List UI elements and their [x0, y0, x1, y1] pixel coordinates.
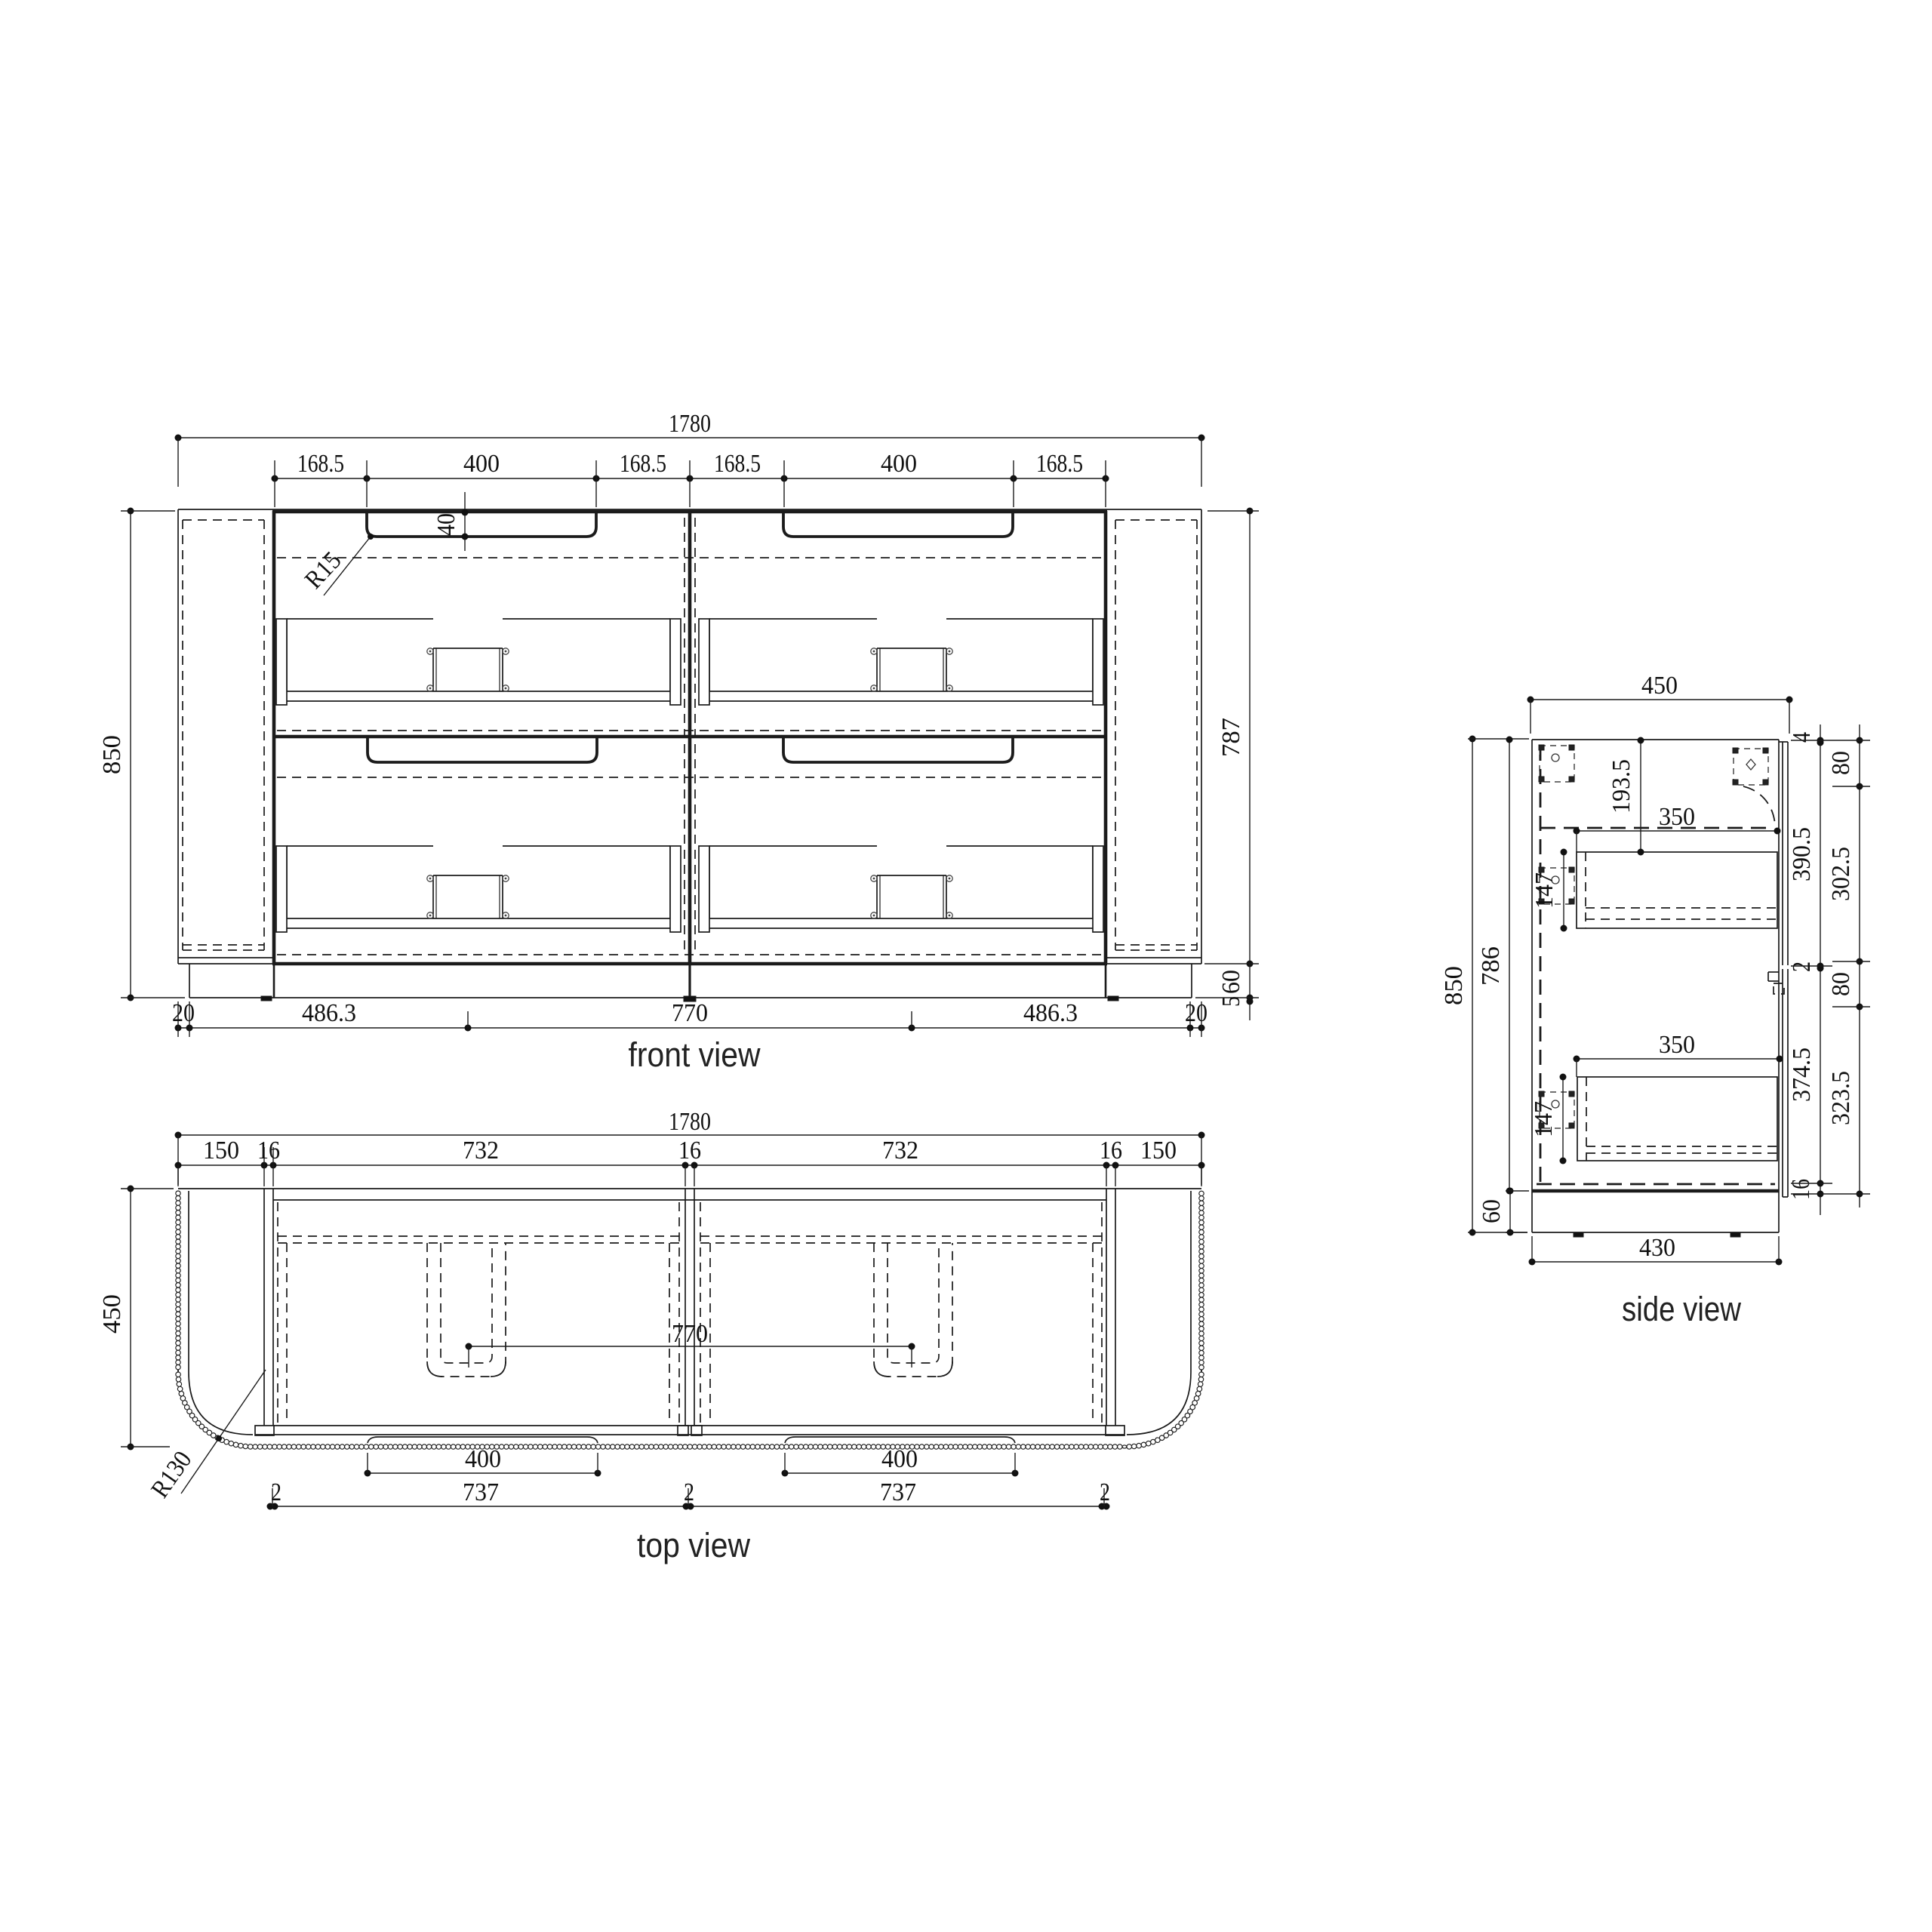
svg-text:168.5: 168.5 — [1036, 450, 1083, 478]
svg-text:147: 147 — [1531, 872, 1558, 909]
svg-text:60: 60 — [1478, 1199, 1506, 1223]
svg-text:60: 60 — [1217, 970, 1245, 994]
svg-text:770: 770 — [672, 999, 708, 1027]
svg-text:2: 2 — [1788, 961, 1816, 972]
svg-text:16: 16 — [678, 1137, 701, 1164]
svg-text:374.5: 374.5 — [1788, 1048, 1816, 1102]
svg-text:400: 400 — [881, 1445, 918, 1473]
svg-text:80: 80 — [1827, 972, 1855, 996]
svg-text:323.5: 323.5 — [1827, 1071, 1855, 1125]
svg-text:168.5: 168.5 — [714, 450, 761, 478]
svg-text:850: 850 — [98, 735, 126, 774]
svg-text:770: 770 — [672, 1320, 708, 1348]
svg-text:400: 400 — [465, 1445, 501, 1473]
svg-text:787: 787 — [1217, 718, 1245, 757]
svg-text:5: 5 — [1217, 996, 1245, 1007]
svg-text:top view: top view — [637, 1526, 750, 1564]
svg-text:side view: side view — [1622, 1290, 1741, 1328]
svg-text:20: 20 — [1185, 999, 1207, 1027]
svg-text:20: 20 — [172, 999, 195, 1027]
svg-text:147: 147 — [1530, 1101, 1558, 1137]
svg-text:850: 850 — [1440, 966, 1468, 1005]
svg-text:1780: 1780 — [669, 410, 711, 438]
svg-text:2: 2 — [271, 1478, 281, 1506]
svg-text:737: 737 — [463, 1478, 499, 1506]
svg-text:350: 350 — [1659, 803, 1695, 831]
svg-text:400: 400 — [463, 450, 500, 478]
svg-text:80: 80 — [1827, 751, 1855, 775]
svg-text:193.5: 193.5 — [1607, 759, 1635, 814]
svg-text:2: 2 — [1100, 1478, 1110, 1506]
svg-text:450: 450 — [98, 1294, 126, 1334]
svg-text:350: 350 — [1659, 1031, 1695, 1059]
svg-text:168.5: 168.5 — [620, 450, 666, 478]
svg-text:150: 150 — [203, 1137, 239, 1164]
svg-text:168.5: 168.5 — [297, 450, 344, 478]
svg-text:16: 16 — [1100, 1137, 1122, 1164]
svg-text:2: 2 — [684, 1478, 694, 1506]
svg-text:737: 737 — [880, 1478, 916, 1506]
svg-text:786: 786 — [1477, 946, 1505, 986]
svg-text:4: 4 — [1788, 732, 1816, 743]
svg-text:302.5: 302.5 — [1827, 847, 1855, 901]
svg-text:486.3: 486.3 — [1023, 999, 1078, 1027]
svg-text:430: 430 — [1639, 1234, 1675, 1262]
svg-text:400: 400 — [881, 450, 917, 478]
svg-text:150: 150 — [1140, 1137, 1177, 1164]
svg-text:40: 40 — [432, 513, 460, 536]
svg-text:16: 16 — [1787, 1179, 1815, 1200]
svg-text:732: 732 — [882, 1137, 918, 1164]
svg-text:1780: 1780 — [669, 1108, 711, 1136]
svg-text:450: 450 — [1641, 672, 1678, 700]
svg-text:front view: front view — [629, 1035, 761, 1074]
svg-text:16: 16 — [257, 1137, 280, 1164]
svg-text:732: 732 — [463, 1137, 499, 1164]
svg-text:390.5: 390.5 — [1788, 827, 1816, 881]
svg-text:486.3: 486.3 — [302, 999, 356, 1027]
